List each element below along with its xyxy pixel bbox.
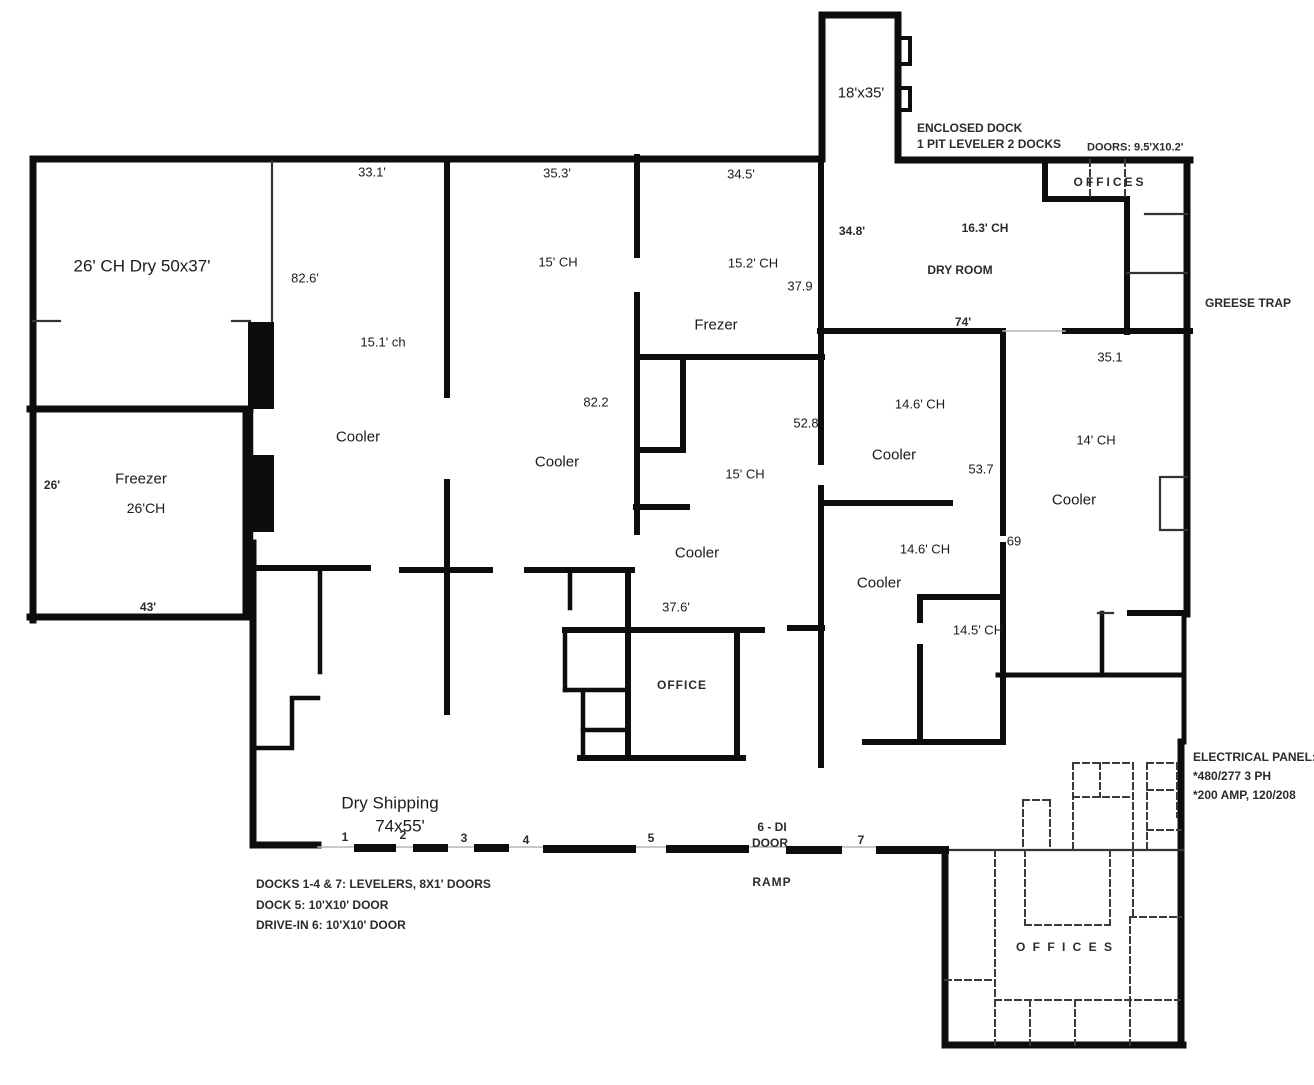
label-dim-14-ch: 14' CH [1076, 434, 1115, 447]
label-note-ramp: RAMP [752, 876, 791, 888]
label-note-greese-trap: GREESE TRAP [1205, 297, 1291, 309]
label-room-dry-50x37: 26' CH Dry 50x37' [74, 258, 211, 275]
label-note-electrical-1: ELECTRICAL PANEL: [1193, 751, 1314, 763]
label-dim-37-9: 37.9 [787, 280, 812, 293]
label-dock-num-5: 5 [648, 832, 655, 844]
label-dim-14-6-ch-a: 14.6' CH [895, 398, 945, 411]
label-dock-num-3: 3 [461, 832, 468, 844]
label-dim-34-5: 34.5' [727, 168, 755, 181]
label-dim-69: 69 [1007, 535, 1021, 548]
label-note-doors-size: DOORS: 9.5'X10.2' [1087, 143, 1183, 154]
label-dim-26: 26' [44, 479, 60, 491]
label-note-docks-3: DRIVE-IN 6: 10'X10' DOOR [256, 919, 406, 931]
label-dock-num-2: 2 [400, 829, 407, 841]
label-note-electrical-2: *480/277 3 PH [1193, 770, 1271, 782]
label-room-cooler-4: Cooler [872, 448, 916, 463]
label-note-enclosed-dock-1: ENCLOSED DOCK [917, 122, 1022, 134]
label-note-docks-1: DOCKS 1-4 & 7: LEVELERS, 8X1' DOORS [256, 878, 491, 890]
label-room-offices-top: OFFICES [1073, 176, 1146, 188]
label-dim-74: 74' [955, 316, 971, 328]
label-room-cooler-2: Cooler [535, 455, 579, 470]
label-dim-15-1-ch: 15.1' ch [360, 336, 405, 349]
floor-plan-labels: 26' CH Dry 50x37'33.1'82.6'15.1' chCoole… [0, 0, 1314, 1085]
label-dim-33-1: 33.1' [358, 166, 386, 179]
label-room-enclosed-dock-size: 18'x35' [838, 86, 885, 101]
label-dim-26-ch: 26'CH [127, 501, 165, 515]
label-room-cooler-6: Cooler [857, 576, 901, 591]
label-room-frezer: Frezer [694, 318, 737, 333]
label-dim-52-8: 52.8 [793, 417, 818, 430]
label-note-docks-2: DOCK 5: 10'X10' DOOR [256, 899, 388, 911]
label-dim-15-ch-1: 15' CH [538, 256, 577, 269]
label-dock-num-6-line1: 6 - DI [757, 821, 786, 833]
label-room-cooler-1: Cooler [336, 430, 380, 445]
label-dim-37-6: 37.6' [662, 601, 690, 614]
label-dock-num-6-line2: DOOR [752, 837, 788, 849]
label-room-freezer: Freezer [115, 472, 167, 487]
label-dim-53-7: 53.7 [968, 463, 993, 476]
label-dim-14-5-ch: 14.5' CH [953, 624, 1003, 637]
label-dim-82-2: 82.2 [583, 396, 608, 409]
label-room-cooler-3: Cooler [675, 546, 719, 561]
label-dim-35-3: 35.3' [543, 167, 571, 180]
label-dock-num-4: 4 [523, 834, 530, 846]
label-dock-num-1: 1 [342, 831, 349, 843]
label-room-cooler-5: Cooler [1052, 493, 1096, 508]
label-room-dry-shipping: Dry Shipping [341, 795, 438, 812]
label-room-dry-room: DRY ROOM [927, 264, 992, 276]
label-room-office-center: OFFICE [657, 679, 707, 691]
label-room-offices-bottom: O F F I C E S [1016, 941, 1114, 953]
label-dock-num-7: 7 [858, 834, 865, 846]
label-dim-14-6-ch-b: 14.6' CH [900, 543, 950, 556]
label-dim-16-3-ch: 16.3' CH [962, 222, 1009, 234]
label-dim-43: 43' [140, 601, 156, 613]
label-dim-35-1: 35.1 [1097, 351, 1122, 364]
label-dim-15-2-ch: 15.2' CH [728, 257, 778, 270]
label-dim-34-8: 34.8' [839, 225, 865, 237]
floor-plan: 26' CH Dry 50x37'33.1'82.6'15.1' chCoole… [0, 0, 1314, 1085]
label-note-electrical-3: *200 AMP, 120/208 [1193, 789, 1296, 801]
label-dim-15-ch-2: 15' CH [725, 468, 764, 481]
label-dim-82-6: 82.6' [291, 272, 319, 285]
label-note-enclosed-dock-2: 1 PIT LEVELER 2 DOCKS [917, 138, 1061, 150]
